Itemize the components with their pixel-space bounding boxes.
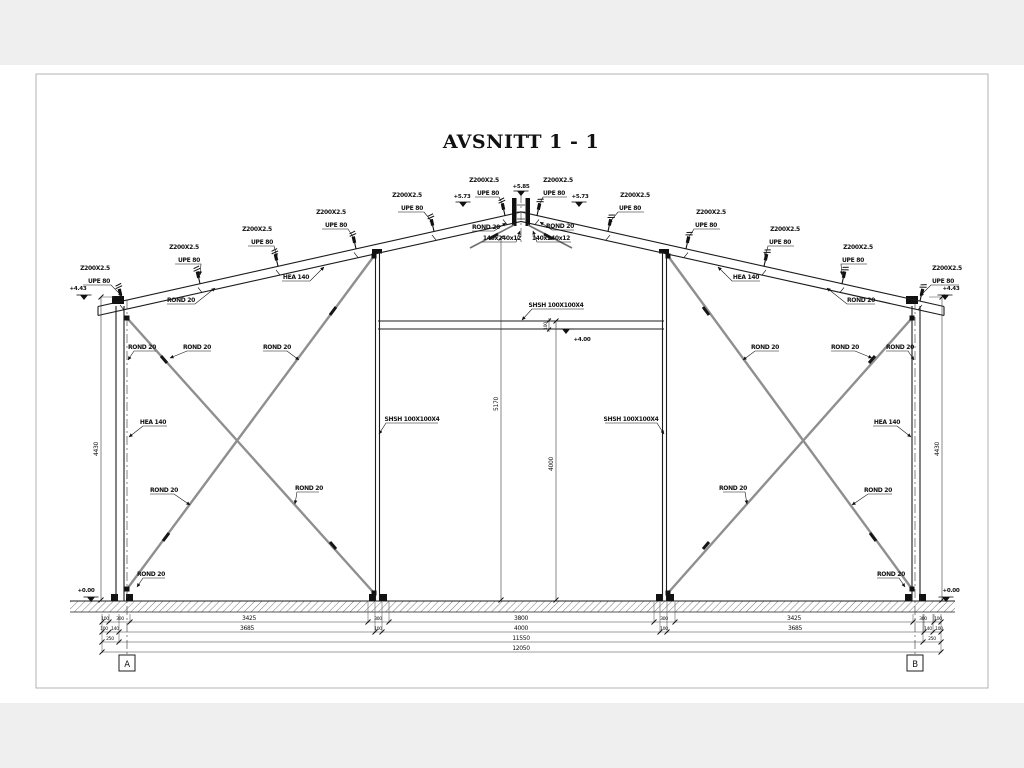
- rafter-hea-label: HEA 140: [283, 274, 309, 281]
- purlin-z-label: Z200X2.5: [620, 192, 650, 199]
- purlin-upe-label: UPE 80: [251, 239, 273, 246]
- dim-value: 100: [100, 626, 108, 632]
- column-hea-label: HEA 140: [140, 419, 166, 426]
- level-eave-left: +4.43: [70, 286, 87, 292]
- level-base-left: +0.00: [78, 588, 95, 594]
- plate-label: 140x240x12: [483, 235, 521, 242]
- dim-ridge-height: 5170: [493, 396, 500, 411]
- level-roof-right: +5.73: [572, 194, 589, 200]
- purlin-upe-label: UPE 80: [401, 205, 423, 212]
- column-hea-label: HEA 140: [874, 419, 900, 426]
- purlin-z-label: Z200X2.5: [392, 192, 422, 199]
- rod-label: ROND 20: [886, 344, 914, 351]
- purlin-z-label: Z200X2.5: [770, 226, 800, 233]
- level-eave-right: +4.43: [943, 286, 960, 292]
- purlin-upe-label: UPE 80: [325, 222, 347, 229]
- purlin-z-label: Z200X2.5: [169, 244, 199, 251]
- rod-label: ROND 20: [877, 571, 905, 578]
- dim-value: 4000: [514, 625, 529, 632]
- drawing-title: AVSNITT 1 - 1: [442, 131, 599, 153]
- page-background: [0, 0, 1024, 768]
- level-base-right: +0.00: [943, 588, 960, 594]
- dim-value: 3425: [242, 615, 257, 622]
- grid-bubble-b: B: [912, 660, 918, 670]
- purlin-z-label: Z200X2.5: [543, 177, 573, 184]
- rod-label: ROND 20: [263, 344, 291, 351]
- plate-label: 140x240x12: [532, 235, 570, 242]
- level-ridge: +5.85: [513, 184, 530, 190]
- dim-value: 3685: [788, 625, 803, 632]
- dim-value: 300: [116, 616, 124, 622]
- rod-label: ROND 20: [128, 344, 156, 351]
- level-roof-left: +5.73: [454, 194, 471, 200]
- rod-label: ROND 20: [150, 487, 178, 494]
- dim-value: 100: [660, 626, 668, 632]
- purlin-upe-label: UPE 80: [477, 190, 499, 197]
- dim-value: 300: [919, 616, 927, 622]
- dim-value: 100: [101, 616, 109, 622]
- drawing-viewer: AVSNITT 1 - 1: [0, 0, 1024, 768]
- dim-value: 3800: [514, 615, 529, 622]
- dim-eave-height-right: 4430: [934, 441, 941, 456]
- purlin-upe-label: UPE 80: [178, 257, 200, 264]
- purlin-z-label: Z200X2.5: [316, 209, 346, 216]
- dim-value: 300: [374, 616, 382, 622]
- shs-label: SHSH 100X100X4: [384, 416, 439, 423]
- rafter-hea-label: HEA 140: [733, 274, 759, 281]
- rod-label: ROND 20: [751, 344, 779, 351]
- purlin-upe-label: UPE 80: [543, 190, 565, 197]
- purlin-upe-label: UPE 80: [932, 278, 954, 285]
- dim-value: 250: [928, 636, 936, 642]
- purlin-upe-label: UPE 80: [695, 222, 717, 229]
- dim-door-height: 4000: [548, 456, 555, 471]
- dim-value: 300: [660, 616, 668, 622]
- purlin-z-label: Z200X2.5: [843, 244, 873, 251]
- purlin-upe-label: UPE 80: [842, 257, 864, 264]
- level-header: +4.00: [574, 337, 591, 343]
- purlin-z-label: Z200X2.5: [696, 209, 726, 216]
- dim-value: 100: [934, 616, 942, 622]
- dim-eave-height-left: 4430: [93, 441, 100, 456]
- shs-label: SHSH 100X100X4: [528, 302, 583, 309]
- dim-value: 140: [111, 626, 119, 632]
- dim-value: 3685: [240, 625, 255, 632]
- dim-value: 12050: [512, 645, 530, 652]
- purlin-upe-label: UPE 80: [88, 278, 110, 285]
- dim-value: 3425: [787, 615, 802, 622]
- drawing-canvas: AVSNITT 1 - 1: [0, 0, 1024, 768]
- purlin-upe-label: UPE 80: [769, 239, 791, 246]
- dim-value: 100: [374, 626, 382, 632]
- rod-label: ROND 20: [864, 487, 892, 494]
- grid-bubble-a: A: [124, 660, 130, 670]
- purlin-z-label: Z200X2.5: [242, 226, 272, 233]
- rod-label: ROND 20: [183, 344, 211, 351]
- shs-label: SHSH 100X100X4: [603, 416, 658, 423]
- rod-label: ROND 20: [831, 344, 859, 351]
- dim-header-depth: 100: [543, 322, 549, 330]
- purlin-z-label: Z200X2.5: [80, 265, 110, 272]
- purlin-z-label: Z200X2.5: [932, 265, 962, 272]
- purlin-z-label: Z200X2.5: [469, 177, 499, 184]
- rod-label: ROND 20: [295, 485, 323, 492]
- dim-value: 100: [935, 626, 943, 632]
- rod-label: ROND 20: [167, 297, 195, 304]
- dim-value: 140: [924, 626, 932, 632]
- dim-value: 11550: [512, 635, 530, 642]
- rod-label: ROND 20: [719, 485, 747, 492]
- rod-label: ROND 20: [137, 571, 165, 578]
- dim-value: 250: [106, 636, 114, 642]
- purlin-upe-label: UPE 80: [619, 205, 641, 212]
- rod-label: ROND 20: [847, 297, 875, 304]
